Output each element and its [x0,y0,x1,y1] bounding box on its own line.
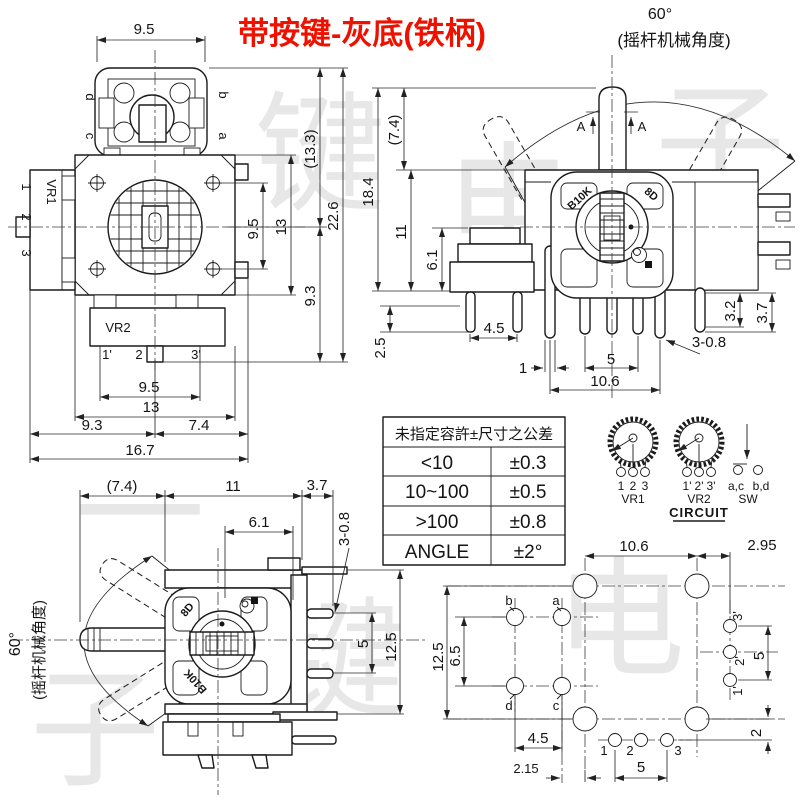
pcb-dim-12-5: 12.5 [430,642,447,671]
dim-9-3-right: 9.3 [302,286,319,307]
dim-9-3-bottom: 9.3 [82,417,103,434]
watermark-char: 子 [30,654,160,800]
dim-1: 1 [519,360,527,377]
table-cell: ±0.8 [510,512,547,533]
pcb-hole-c: c [553,698,560,713]
pcb-dim-6-5: 6.5 [447,646,464,667]
dim-12-5-side: 12.5 [383,632,400,661]
angle-note: (摇杆机械角度) [617,31,730,50]
pcb-hole-a: a [552,593,560,608]
vr1-pin-3: 3 [19,249,34,256]
pcb-dim-2: 2 [748,729,765,737]
pcb-dim-2-95: 2.95 [747,537,776,554]
dim-16-7: 16.7 [125,442,154,459]
table-cell: ANGLE [405,542,469,563]
pcb-hole-b: b [505,593,512,608]
pcb-pin-2: 2 [626,743,633,758]
circuit-vr1-pin-2: 2 [630,479,637,493]
dim-18-4: 18.4 [360,177,377,206]
pcb-dim-4-5: 4.5 [528,730,549,747]
dim-6-1: 6.1 [424,250,441,271]
dim-3-7-side: 3.7 [307,477,328,494]
pcb-pin-1p: 1' [730,686,745,696]
dim-9-5-bottom: 9.5 [139,379,160,396]
dim-3-2: 3.2 [722,301,739,322]
dim-7-4-bottom: 7.4 [189,417,210,434]
table-header: 未指定容許±尺寸之公差 [395,426,553,443]
circuit-diagram: 1 2 3 VR1 1' 2' 3' VR2 a,c b,d SW CIRCUI… [610,419,769,521]
dim-6-1-side: 6.1 [249,514,270,531]
dim-2-5: 2.5 [372,338,389,359]
circuit-vr2-pin-2: 2' [695,479,704,493]
tolerance-table: 未指定容許±尺寸之公差 <10 ±0.3 10~100 ±0.5 >100 ±0… [383,417,565,565]
drawing-title: 带按键-灰底(铁柄) [238,16,486,51]
dim-9-5-top: 9.5 [134,21,155,38]
pcb-pin-1: 1 [600,743,607,758]
pcb-dim-2-15: 2.15 [513,761,538,776]
watermark-char: 电 [555,544,685,696]
joystick-engineering-drawing: 键 电 子 一 键 电 子 带按键-灰底(铁柄) [0,0,800,800]
circuit-vr1-pin-1: 1 [618,479,625,493]
dim-13-bottom: 13 [143,399,160,416]
table-cell: ±0.3 [510,453,547,474]
dim-10-6: 10.6 [590,373,619,390]
table-cell: ±0.5 [510,482,547,503]
table-cell: >100 [416,512,459,533]
dim-5: 5 [607,351,615,368]
vr1-pin-1: 1 [19,183,34,190]
switch-terminal-b: b [216,91,231,98]
section-mark-a-left: A [577,119,586,134]
switch-terminal-a: a [216,132,231,140]
pcb-hole-d: d [505,698,512,713]
circuit-vr2-label: VR2 [687,492,711,506]
pcb-dim-5-right: 5 [751,652,768,660]
circuit-sw-label: SW [738,492,758,506]
dim-5-side: 5 [355,640,372,648]
section-mark-a-right: A [638,119,647,134]
table-cell: <10 [421,453,453,474]
pcb-dim-10-6: 10.6 [619,538,648,555]
vr1-pin-2: 2 [19,213,34,220]
dim-9-5-right: 9.5 [245,219,262,240]
table-cell: 10~100 [405,482,469,503]
dim-11-side: 11 [225,478,241,495]
circuit-sw-terminal-ac: a,c [728,479,744,493]
dim-13-right: 13 [273,219,290,236]
switch-terminal-c: c [83,133,98,140]
circuit-vr1-label: VR1 [621,492,645,506]
front-view: 60° (摇杆机械角度) A A B10K 8D 18.4 (7.4) 11 6… [360,6,795,400]
vr1-label: VR1 [44,179,59,204]
dim-7-4: (7.4) [386,115,403,146]
dim-3-0-8-side: 3-0.8 [336,512,353,546]
circuit-vr2-pin-3: 3' [707,479,716,493]
table-cell: ±2° [514,542,543,563]
pcb-pin-3p: 3' [730,611,745,621]
dim-22-6: 22.6 [325,201,342,230]
circuit-vr2-pin-1: 1' [683,479,692,493]
watermark-char: 一 [75,439,205,591]
pcb-pin-2p: 2' [732,656,747,666]
pcb-dim-5-bottom: 5 [637,759,645,776]
angle-value: 60° [648,6,672,23]
circuit-vr1-pin-3: 3 [642,479,649,493]
circuit-sw-terminal-bd: b,d [753,479,770,493]
dim-7-4-side: (7.4) [107,478,138,495]
angle-note-side: (摇杆机械角度) [31,600,48,700]
dim-11: 11 [393,224,410,240]
vr2-pin-1: 1' [102,347,112,362]
dim-3-0-8: 3-0.8 [692,334,726,351]
switch-terminal-d: d [83,93,98,100]
vr2-pin-2: 2 [135,347,142,362]
dim-4-5: 4.5 [484,320,505,337]
dim-13-3: (13.3) [302,129,319,168]
angle-value-side: 60° [7,632,24,656]
vr2-pin-3: 3' [191,347,201,362]
vr2-label: VR2 [105,320,130,335]
dim-3-7: 3.7 [754,303,771,324]
pcb-pin-3: 3 [674,743,681,758]
circuit-caption: CIRCUIT [669,505,729,520]
